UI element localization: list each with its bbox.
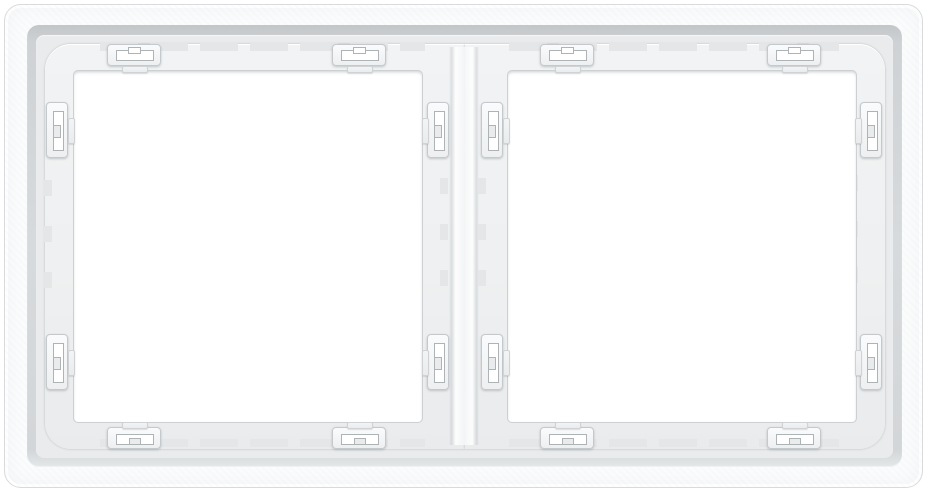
product-photo-two-gang-frame bbox=[0, 0, 929, 493]
mount-clip-right bbox=[860, 334, 882, 390]
clip-latch bbox=[488, 357, 496, 370]
clip-tab bbox=[503, 350, 510, 376]
mount-clip-left bbox=[481, 102, 503, 158]
mount-clip-bottom bbox=[767, 427, 821, 449]
mount-clip-bottom bbox=[540, 427, 594, 449]
clip-tab bbox=[555, 66, 581, 73]
mount-clip-top bbox=[540, 44, 594, 66]
clip-latch bbox=[789, 438, 801, 445]
mount-clip-right bbox=[860, 102, 882, 158]
clip-tab bbox=[855, 118, 862, 144]
clip-latch bbox=[488, 125, 496, 138]
mount-clip-left bbox=[481, 334, 503, 390]
mount-clip-top bbox=[767, 44, 821, 66]
clip-tab bbox=[782, 66, 808, 73]
clip-latch bbox=[788, 47, 801, 54]
clip-tab bbox=[782, 422, 808, 429]
clip-tab bbox=[555, 422, 581, 429]
clip-latch bbox=[561, 47, 574, 54]
clip-tab bbox=[855, 350, 862, 376]
clip-latch bbox=[867, 125, 875, 138]
clip-latch bbox=[867, 357, 875, 370]
clip-latch bbox=[562, 438, 574, 445]
right-window-clips bbox=[0, 0, 929, 493]
clip-tab bbox=[503, 118, 510, 144]
